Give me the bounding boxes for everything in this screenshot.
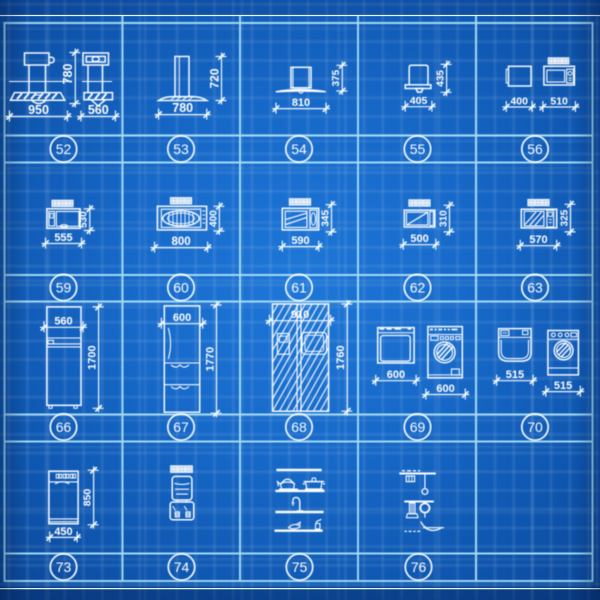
svg-text:910: 910 [291, 309, 309, 321]
svg-text:800: 800 [171, 236, 190, 248]
svg-text:515: 515 [506, 369, 524, 381]
svg-text:590: 590 [291, 235, 309, 247]
svg-text:55: 55 [410, 141, 426, 157]
svg-text:400: 400 [208, 210, 219, 227]
svg-text:810: 810 [292, 97, 310, 109]
svg-text:560: 560 [54, 316, 72, 328]
svg-text:62: 62 [410, 279, 426, 295]
svg-text:69: 69 [410, 419, 426, 435]
svg-text:59: 59 [56, 279, 72, 295]
svg-text:70: 70 [527, 419, 543, 435]
svg-text:61: 61 [291, 279, 307, 295]
svg-text:73: 73 [56, 559, 72, 575]
svg-text:75: 75 [292, 559, 308, 575]
svg-text:555: 555 [54, 232, 72, 244]
svg-text:325: 325 [559, 209, 570, 226]
svg-text:345: 345 [320, 210, 331, 227]
svg-text:54: 54 [291, 141, 307, 157]
svg-text:600: 600 [387, 369, 405, 381]
svg-text:310: 310 [438, 210, 449, 227]
svg-text:600: 600 [436, 383, 454, 395]
svg-text:780: 780 [172, 101, 193, 115]
svg-text:560: 560 [88, 103, 109, 117]
svg-text:60: 60 [173, 279, 189, 295]
svg-text:1700: 1700 [87, 345, 99, 369]
svg-text:53: 53 [173, 141, 189, 157]
svg-text:720: 720 [207, 68, 221, 88]
svg-text:530: 530 [79, 211, 90, 228]
svg-text:63: 63 [527, 279, 543, 295]
svg-text:74: 74 [174, 559, 190, 575]
svg-text:500: 500 [410, 233, 428, 245]
svg-text:510: 510 [550, 95, 568, 107]
svg-text:400: 400 [510, 95, 528, 107]
svg-text:600: 600 [173, 312, 191, 324]
svg-text:850: 850 [82, 489, 94, 507]
svg-text:950: 950 [28, 103, 49, 117]
svg-text:67: 67 [173, 419, 189, 435]
svg-text:515: 515 [554, 380, 572, 392]
svg-text:570: 570 [529, 234, 547, 246]
svg-text:56: 56 [527, 141, 543, 157]
svg-text:66: 66 [56, 419, 72, 435]
svg-text:375: 375 [331, 69, 342, 86]
svg-text:68: 68 [291, 419, 307, 435]
svg-text:76: 76 [411, 559, 427, 575]
svg-text:405: 405 [410, 95, 428, 107]
svg-text:1760: 1760 [335, 345, 347, 369]
svg-text:450: 450 [54, 526, 72, 538]
svg-text:435: 435 [436, 70, 447, 87]
svg-text:1770: 1770 [204, 347, 216, 371]
svg-text:780: 780 [61, 64, 75, 85]
svg-text:52: 52 [56, 141, 72, 157]
